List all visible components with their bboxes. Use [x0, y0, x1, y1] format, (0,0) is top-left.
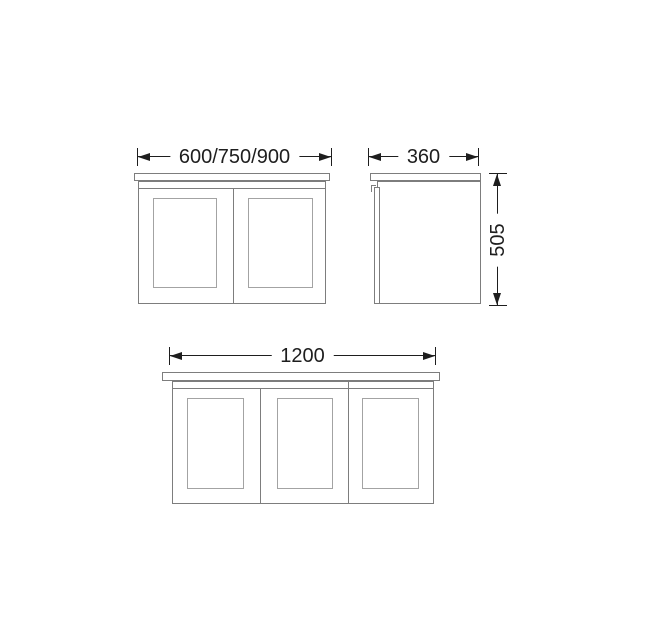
door-panel [187, 398, 244, 489]
door-divider [260, 389, 261, 503]
door-divider [348, 382, 349, 503]
width-dimension-label: 1200 [271, 345, 334, 367]
door-panel [362, 398, 419, 489]
dimension-tick-right [435, 347, 436, 365]
arrow-right-icon [423, 352, 435, 360]
width-dimension-large: 1200 [169, 347, 436, 365]
countertop [162, 372, 440, 381]
door-panel [277, 398, 333, 489]
technical-drawing-canvas: 600/750/900 360 505 [0, 0, 645, 626]
top-rail-line [173, 388, 433, 389]
front-view-three-door: 1200 [0, 0, 645, 626]
arrow-left-icon [170, 352, 182, 360]
